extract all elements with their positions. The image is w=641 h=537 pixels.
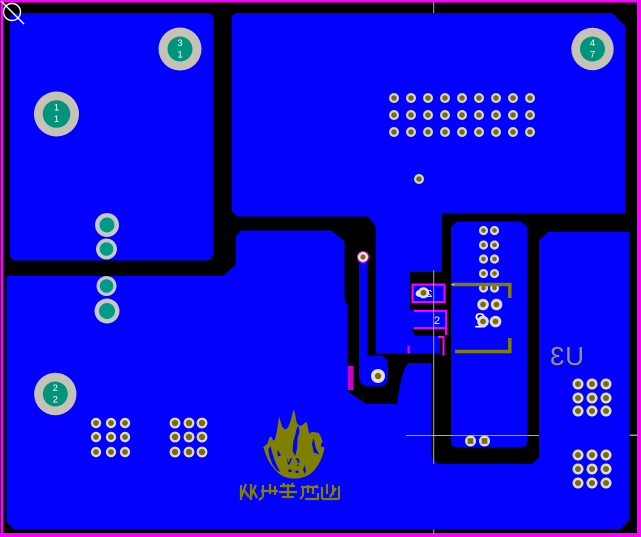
svg-text:7: 7	[590, 50, 595, 61]
svg-text:1: 1	[177, 50, 182, 61]
svg-text:2: 2	[53, 395, 58, 406]
svg-text:U3: U3	[550, 341, 584, 371]
svg-text:4: 4	[590, 38, 595, 49]
svg-text:1: 1	[54, 103, 59, 114]
svg-text:2: 2	[53, 383, 58, 394]
svg-text:2: 2	[434, 315, 440, 327]
svg-text:3: 3	[177, 38, 182, 49]
svg-text:1: 1	[54, 114, 59, 125]
svg-text:2: 2	[426, 289, 432, 300]
